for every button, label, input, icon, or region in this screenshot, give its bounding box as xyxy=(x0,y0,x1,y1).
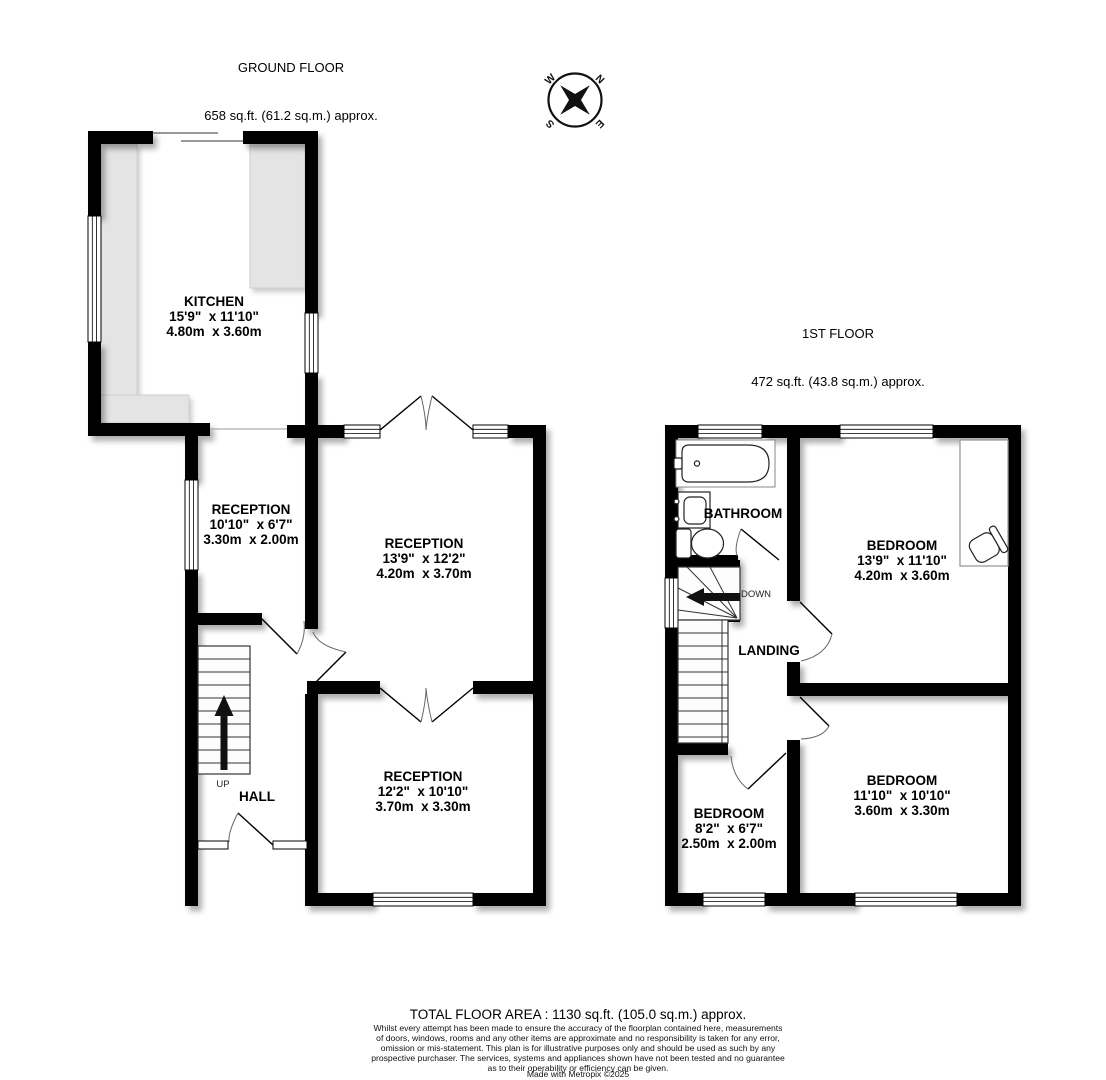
stairs-up-label: UP xyxy=(216,779,229,790)
stairs-down-label: DOWN xyxy=(741,589,771,600)
kitchen-label: KITCHEN 15'9" x 11'10" 4.80m x 3.60m xyxy=(166,294,261,339)
first-floor-header: 1ST FLOOR 472 sq.ft. (43.8 sq.m.) approx… xyxy=(751,294,924,406)
compass-w: W xyxy=(543,72,559,88)
reception-left-label: RECEPTION 10'10" x 6'7" 3.30m x 2.00m xyxy=(203,502,298,547)
ground-floor-area: 658 sq.ft. (61.2 sq.m.) approx. xyxy=(204,108,377,124)
kitchen-counters xyxy=(100,144,305,423)
disclaimer: Whilst every attempt has been made to en… xyxy=(371,1024,785,1074)
landing-label: LANDING xyxy=(738,643,800,658)
ground-floor-header: GROUND FLOOR 658 sq.ft. (61.2 sq.m.) app… xyxy=(204,28,377,140)
first-floor-area: 472 sq.ft. (43.8 sq.m.) approx. xyxy=(751,374,924,390)
hall-label: HALL xyxy=(239,789,275,804)
first-floor-title: 1ST FLOOR xyxy=(751,326,924,342)
compass-icon: N W S E xyxy=(543,72,607,131)
bathroom-label: BATHROOM xyxy=(704,506,783,521)
total-floor-area: TOTAL FLOOR AREA : 1130 sq.ft. (105.0 sq… xyxy=(410,1007,746,1022)
stairs-up xyxy=(198,646,250,774)
toilet-icon xyxy=(676,529,724,558)
credit: Made with Metropix ©2025 xyxy=(527,1070,629,1080)
ground-floor-title: GROUND FLOOR xyxy=(204,60,377,76)
reception-bottom-label: RECEPTION 12'2" x 10'10" 3.70m x 3.30m xyxy=(375,769,470,814)
floorplan: N W S E GROUND FLOOR 658 sq.ft. (61.2 sq… xyxy=(0,0,1106,1080)
reception-middle-label: RECEPTION 13'9" x 12'2" 4.20m x 3.70m xyxy=(376,536,471,581)
bedroom-large-label: BEDROOM 13'9" x 11'10" 4.20m x 3.60m xyxy=(854,538,949,583)
compass-n: N xyxy=(593,72,607,86)
bedroom-small-label: BEDROOM 8'2" x 6'7" 2.50m x 2.00m xyxy=(681,806,776,851)
bedroom-rear-label: BEDROOM 11'10" x 10'10" 3.60m x 3.30m xyxy=(853,773,950,818)
bath-icon xyxy=(674,440,775,487)
stairs-down xyxy=(678,567,740,743)
